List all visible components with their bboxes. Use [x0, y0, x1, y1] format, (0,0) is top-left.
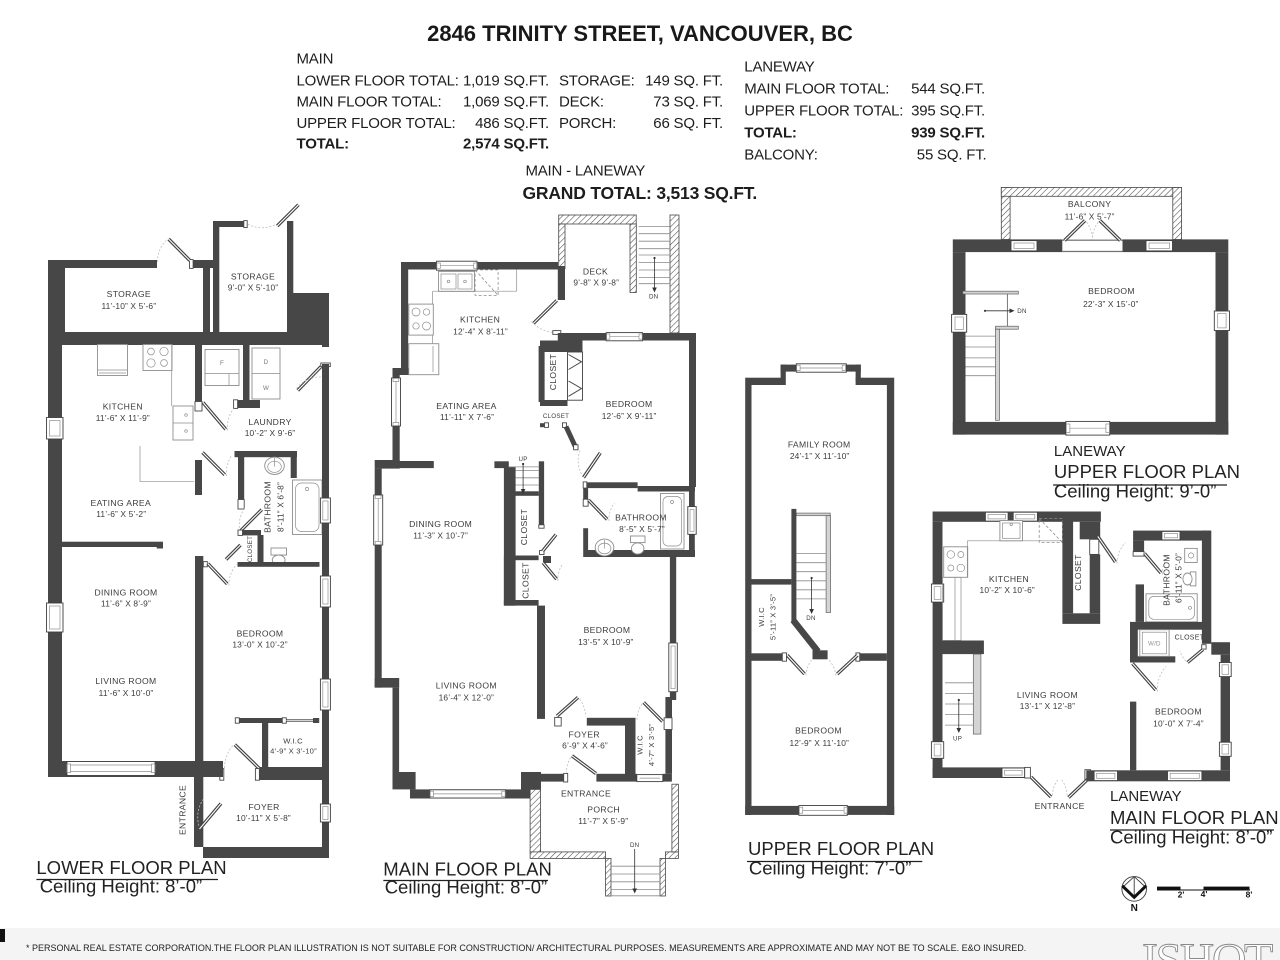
svg-text:11’-3” X 10’-7”: 11’-3” X 10’-7” — [413, 531, 468, 541]
svg-text:11’-6” X 11’-9”: 11’-6” X 11’-9” — [96, 413, 150, 423]
svg-text:11’-10” X 5’-6”: 11’-10” X 5’-6” — [101, 301, 156, 311]
svg-text:24’-1” X 11’-10”: 24’-1” X 11’-10” — [790, 451, 850, 461]
svg-text:Ceiling Height: 8’-0”: Ceiling Height: 8’-0” — [1110, 827, 1272, 848]
svg-text:13’-1” X 12’-8”: 13’-1” X 12’-8” — [1020, 701, 1075, 711]
svg-text:4’-9” X 3’-10”: 4’-9” X 3’-10” — [270, 747, 317, 756]
svg-text:LANEWAY: LANEWAY — [1110, 788, 1182, 805]
svg-text:DN: DN — [806, 615, 815, 622]
svg-text:EATING AREA: EATING AREA — [91, 498, 152, 508]
svg-text:BALCONY: BALCONY — [1068, 199, 1112, 209]
svg-text:LAUNDRY: LAUNDRY — [248, 417, 291, 427]
svg-text:DINING ROOM: DINING ROOM — [94, 588, 157, 598]
svg-text:BEDROOM: BEDROOM — [1088, 286, 1135, 296]
svg-text:LOWER FLOOR TOTAL:: LOWER FLOOR TOTAL: — [297, 73, 459, 90]
svg-text:BEDROOM: BEDROOM — [606, 399, 653, 409]
svg-text:ENTRANCE: ENTRANCE — [1035, 801, 1085, 811]
svg-text:UPPER FLOOR TOTAL:: UPPER FLOOR TOTAL: — [297, 115, 456, 132]
svg-text:KITCHEN: KITCHEN — [460, 315, 500, 325]
svg-text:11’-6” X 10’-0”: 11’-6” X 10’-0” — [99, 688, 154, 698]
svg-text:W.I.C: W.I.C — [636, 735, 645, 755]
svg-text:CLOSET: CLOSET — [519, 508, 529, 545]
svg-text:9’-0” X 5’-10”: 9’-0” X 5’-10” — [228, 283, 279, 293]
svg-text:486 SQ.FT.: 486 SQ.FT. — [475, 115, 549, 132]
svg-text:CLOSET: CLOSET — [247, 536, 254, 562]
svg-text:DINING ROOM: DINING ROOM — [409, 519, 472, 529]
svg-text:12’-6” X 9’-11”: 12’-6” X 9’-11” — [602, 411, 657, 421]
svg-text:73 SQ. FT.: 73 SQ. FT. — [653, 94, 723, 111]
svg-text:6’-11” X 5’-0”: 6’-11” X 5’-0” — [1174, 553, 1184, 603]
svg-text:UP: UP — [953, 736, 962, 743]
svg-text:FOYER: FOYER — [569, 730, 600, 740]
svg-text:TOTAL:: TOTAL: — [744, 125, 796, 142]
svg-text:W/D: W/D — [1148, 641, 1161, 648]
svg-text:2846 TRINITY STREET, VANCOUVER: 2846 TRINITY STREET, VANCOUVER, BC — [427, 21, 853, 46]
svg-text:149 SQ. FT.: 149 SQ. FT. — [645, 73, 723, 90]
svg-text:MAIN FLOOR TOTAL:: MAIN FLOOR TOTAL: — [297, 94, 442, 111]
svg-text:DN: DN — [1017, 308, 1026, 315]
svg-text:11’-11” X 7’-6”: 11’-11” X 7’-6” — [440, 412, 494, 422]
svg-text:BEDROOM: BEDROOM — [795, 726, 842, 736]
svg-text:GRAND TOTAL: 3,513 SQ.FT.: GRAND TOTAL: 3,513 SQ.FT. — [523, 183, 758, 203]
svg-text:F: F — [220, 360, 224, 367]
svg-text:BATHROOM: BATHROOM — [615, 513, 667, 523]
svg-text:10’-11” X 5’-8”: 10’-11” X 5’-8” — [236, 813, 291, 823]
svg-text:9’-8” X 9’-8”: 9’-8” X 9’-8” — [573, 278, 619, 288]
svg-text:KITCHEN: KITCHEN — [103, 402, 143, 412]
svg-text:PORCH:: PORCH: — [559, 115, 616, 132]
svg-text:CLOSET: CLOSET — [521, 562, 531, 599]
svg-text:11’-6” X 5’-2”: 11’-6” X 5’-2” — [96, 509, 146, 519]
svg-text:W: W — [263, 385, 269, 392]
svg-text:LIVING ROOM: LIVING ROOM — [436, 681, 497, 691]
svg-text:STORAGE: STORAGE — [231, 272, 275, 282]
svg-text:1,069 SQ.FT.: 1,069 SQ.FT. — [463, 94, 549, 111]
svg-text:10’-2” X 10’-6”: 10’-2” X 10’-6” — [980, 585, 1035, 595]
svg-text:4': 4' — [1201, 889, 1208, 899]
svg-text:UPPER FLOOR PLAN: UPPER FLOOR PLAN — [1054, 461, 1240, 482]
svg-text:Ceiling Height: 7’-0”: Ceiling Height: 7’-0” — [749, 858, 911, 879]
svg-text:ISHOT: ISHOT — [1142, 934, 1273, 960]
svg-text:11’-6” X 5’-7”: 11’-6” X 5’-7” — [1065, 212, 1115, 222]
svg-text:STORAGE:: STORAGE: — [559, 73, 635, 90]
svg-text:22’-3” X 15’-0”: 22’-3” X 15’-0” — [1083, 299, 1138, 309]
svg-text:11’-6” X 8’-9”: 11’-6” X 8’-9” — [101, 599, 151, 609]
svg-text:8’-11” X 6’-8”: 8’-11” X 6’-8” — [276, 482, 286, 532]
svg-text:939 SQ.FT.: 939 SQ.FT. — [911, 125, 985, 142]
svg-text:W.I.C: W.I.C — [757, 607, 766, 627]
svg-text:8': 8' — [1246, 890, 1253, 900]
svg-text:UP: UP — [519, 456, 528, 463]
svg-text:CLOSET: CLOSET — [1073, 554, 1083, 591]
svg-text:MAIN - LANEWAY: MAIN - LANEWAY — [525, 163, 645, 180]
svg-text:CLOSET: CLOSET — [543, 413, 569, 420]
svg-text:LANEWAY: LANEWAY — [744, 59, 814, 76]
svg-text:395 SQ.FT.: 395 SQ.FT. — [911, 103, 985, 120]
svg-text:TOTAL:: TOTAL: — [297, 136, 349, 153]
svg-text:DN: DN — [649, 294, 658, 301]
svg-text:EATING AREA: EATING AREA — [436, 401, 497, 411]
svg-text:LIVING ROOM: LIVING ROOM — [95, 676, 156, 686]
svg-text:Ceiling Height: 9’-0”: Ceiling Height: 9’-0” — [1054, 481, 1216, 502]
svg-text:UPPER FLOOR PLAN: UPPER FLOOR PLAN — [748, 838, 934, 859]
svg-text:ENTRANCE: ENTRANCE — [178, 785, 188, 835]
svg-text:BALCONY:: BALCONY: — [744, 147, 817, 164]
svg-text:N: N — [1131, 903, 1138, 914]
svg-text:13’-5” X 10’-9”: 13’-5” X 10’-9” — [578, 637, 633, 647]
svg-text:16’-4” X 12’-0”: 16’-4” X 12’-0” — [439, 693, 494, 703]
svg-text:544 SQ.FT.: 544 SQ.FT. — [911, 80, 985, 97]
svg-text:W.I.C: W.I.C — [283, 737, 303, 746]
svg-text:DN: DN — [630, 842, 639, 849]
svg-text:Ceiling Height: 8’-0”: Ceiling Height: 8’-0” — [40, 876, 202, 897]
svg-text:BATHROOM: BATHROOM — [263, 481, 273, 533]
svg-text:CLOSET: CLOSET — [548, 353, 558, 390]
svg-text:8’-5” X 5’-7”: 8’-5” X 5’-7” — [619, 524, 665, 534]
svg-text:1,019 SQ.FT.: 1,019 SQ.FT. — [463, 73, 549, 90]
svg-text:PORCH: PORCH — [587, 805, 620, 815]
svg-text:BEDROOM: BEDROOM — [1155, 707, 1202, 717]
svg-text:6’-9” X 4’-6”: 6’-9” X 4’-6” — [562, 741, 608, 751]
svg-text:DECK:: DECK: — [559, 94, 604, 111]
svg-text:13’-0” X 10’-2”: 13’-0” X 10’-2” — [232, 640, 287, 650]
svg-text:2': 2' — [1178, 890, 1185, 900]
svg-text:10’-0” X 7’-4”: 10’-0” X 7’-4” — [1153, 719, 1204, 729]
svg-text:66 SQ. FT.: 66 SQ. FT. — [653, 115, 723, 132]
svg-text:12’-4” X 8’-11”: 12’-4” X 8’-11” — [453, 327, 508, 337]
svg-text:12’-9” X 11’-10”: 12’-9” X 11’-10” — [789, 738, 849, 748]
svg-text:ENTRANCE: ENTRANCE — [561, 789, 611, 799]
svg-text:2,574 SQ.FT.: 2,574 SQ.FT. — [463, 136, 549, 153]
svg-text:55 SQ. FT.: 55 SQ. FT. — [917, 147, 987, 164]
svg-text:4’-7” X 3’-5”: 4’-7” X 3’-5” — [647, 724, 656, 767]
svg-text:BATHROOM: BATHROOM — [1162, 554, 1172, 606]
svg-text:11’-7” X 5’-9”: 11’-7” X 5’-9” — [578, 816, 628, 826]
svg-text:DECK: DECK — [583, 267, 608, 277]
svg-text:* PERSONAL REAL ESTATE CORPORA: * PERSONAL REAL ESTATE CORPORATION.THE F… — [26, 943, 1026, 953]
svg-text:LIVING ROOM: LIVING ROOM — [1017, 690, 1078, 700]
svg-text:UPPER FLOOR TOTAL:: UPPER FLOOR TOTAL: — [744, 103, 903, 120]
svg-text:KITCHEN: KITCHEN — [989, 574, 1029, 584]
svg-text:10’-2” X 9’-6”: 10’-2” X 9’-6” — [245, 428, 296, 438]
svg-text:D: D — [264, 359, 269, 366]
svg-text:FOYER: FOYER — [248, 802, 279, 812]
svg-text:Ceiling Height: 8’-0”: Ceiling Height: 8’-0” — [385, 877, 547, 898]
svg-text:MAIN FLOOR PLAN: MAIN FLOOR PLAN — [1110, 807, 1279, 828]
svg-text:BEDROOM: BEDROOM — [237, 629, 284, 639]
svg-text:5’-11” X 3’-5”: 5’-11” X 3’-5” — [769, 594, 778, 640]
svg-text:LANEWAY: LANEWAY — [1054, 443, 1126, 460]
svg-text:STORAGE: STORAGE — [107, 289, 151, 299]
svg-text:MAIN: MAIN — [297, 51, 334, 68]
svg-text:FAMILY ROOM: FAMILY ROOM — [788, 440, 851, 450]
svg-text:BEDROOM: BEDROOM — [584, 625, 631, 635]
svg-text:MAIN FLOOR TOTAL:: MAIN FLOOR TOTAL: — [744, 80, 889, 97]
svg-text:CLOSET: CLOSET — [1175, 635, 1205, 642]
